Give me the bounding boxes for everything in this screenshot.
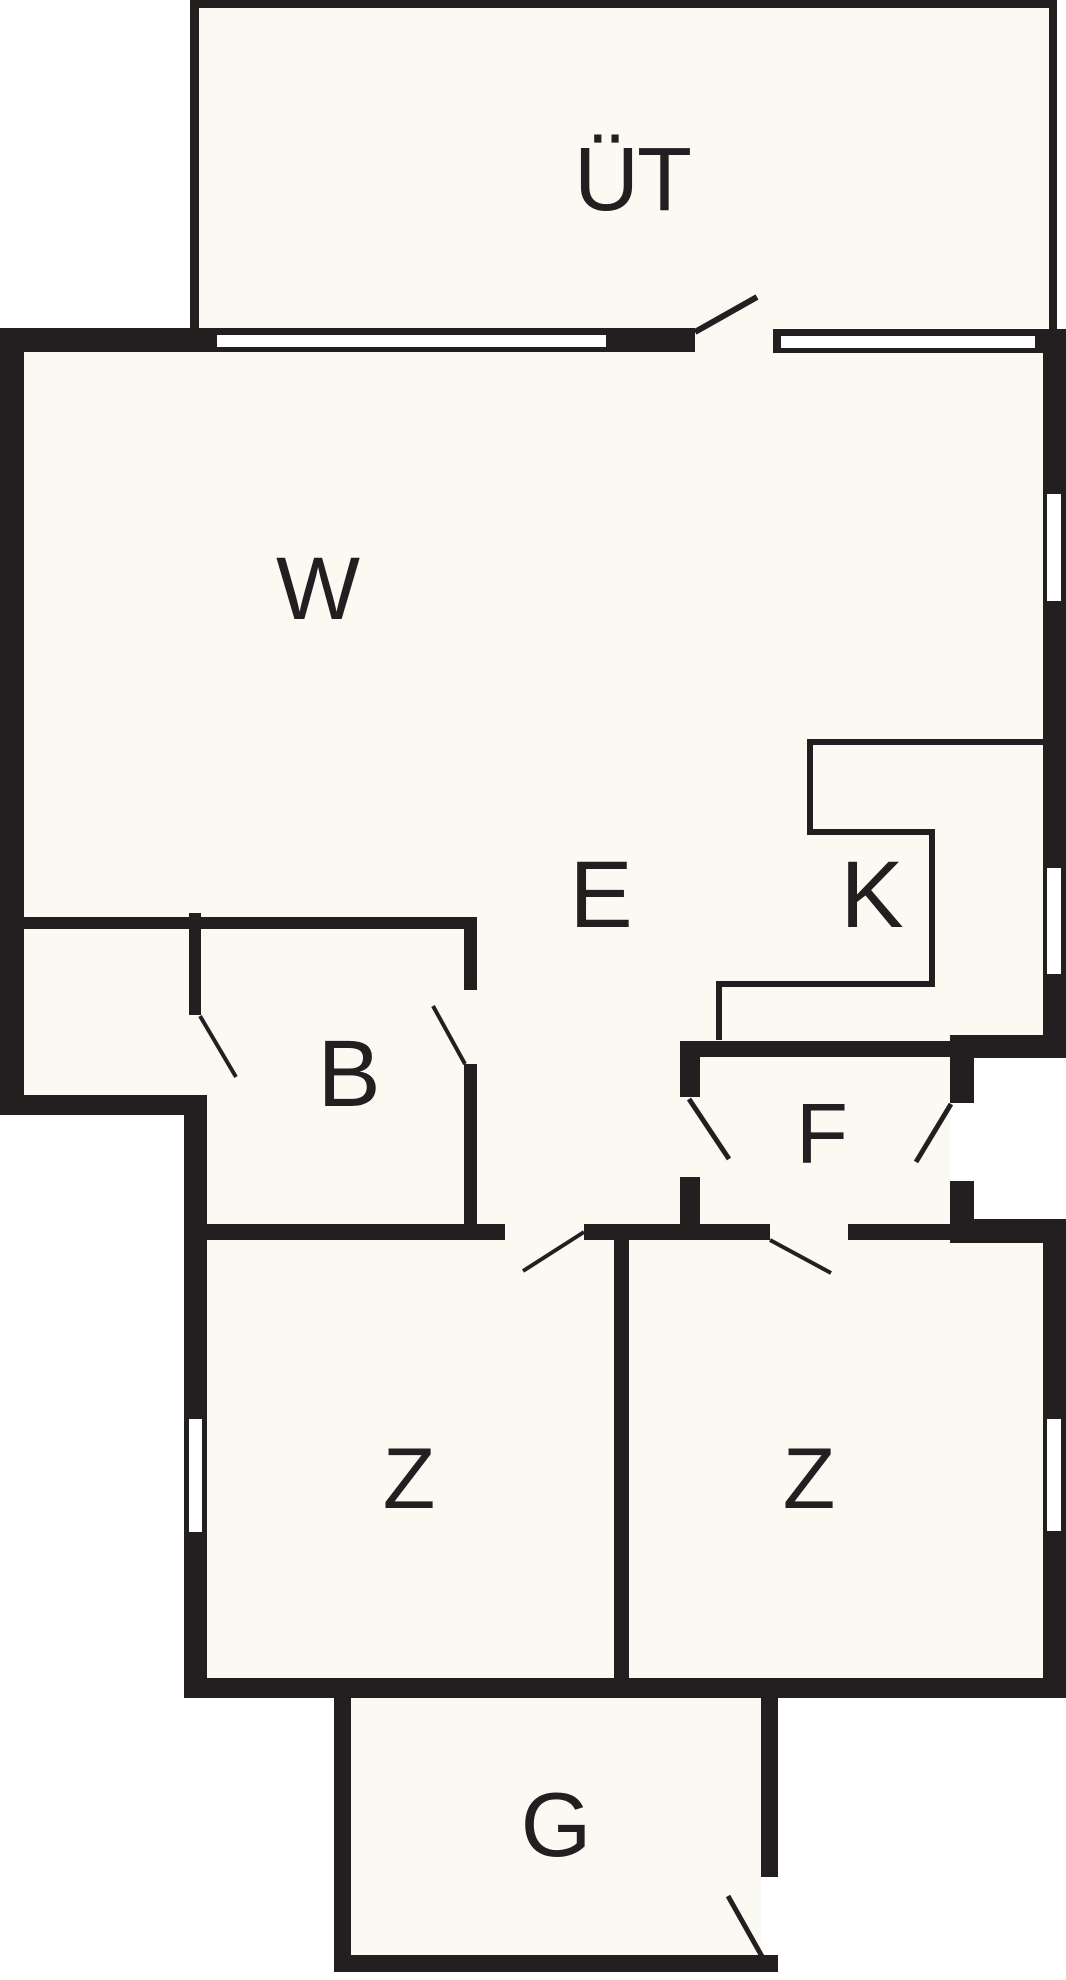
svg-text:F: F (796, 1087, 848, 1182)
svg-text:Z: Z (383, 1431, 436, 1527)
svg-text:E: E (569, 842, 632, 948)
svg-text:ÜT: ÜT (574, 130, 690, 230)
svg-text:G: G (521, 1775, 592, 1876)
svg-text:Z: Z (783, 1431, 836, 1527)
svg-text:W: W (276, 538, 360, 638)
svg-text:B: B (317, 1021, 380, 1127)
svg-text:K: K (840, 842, 903, 948)
